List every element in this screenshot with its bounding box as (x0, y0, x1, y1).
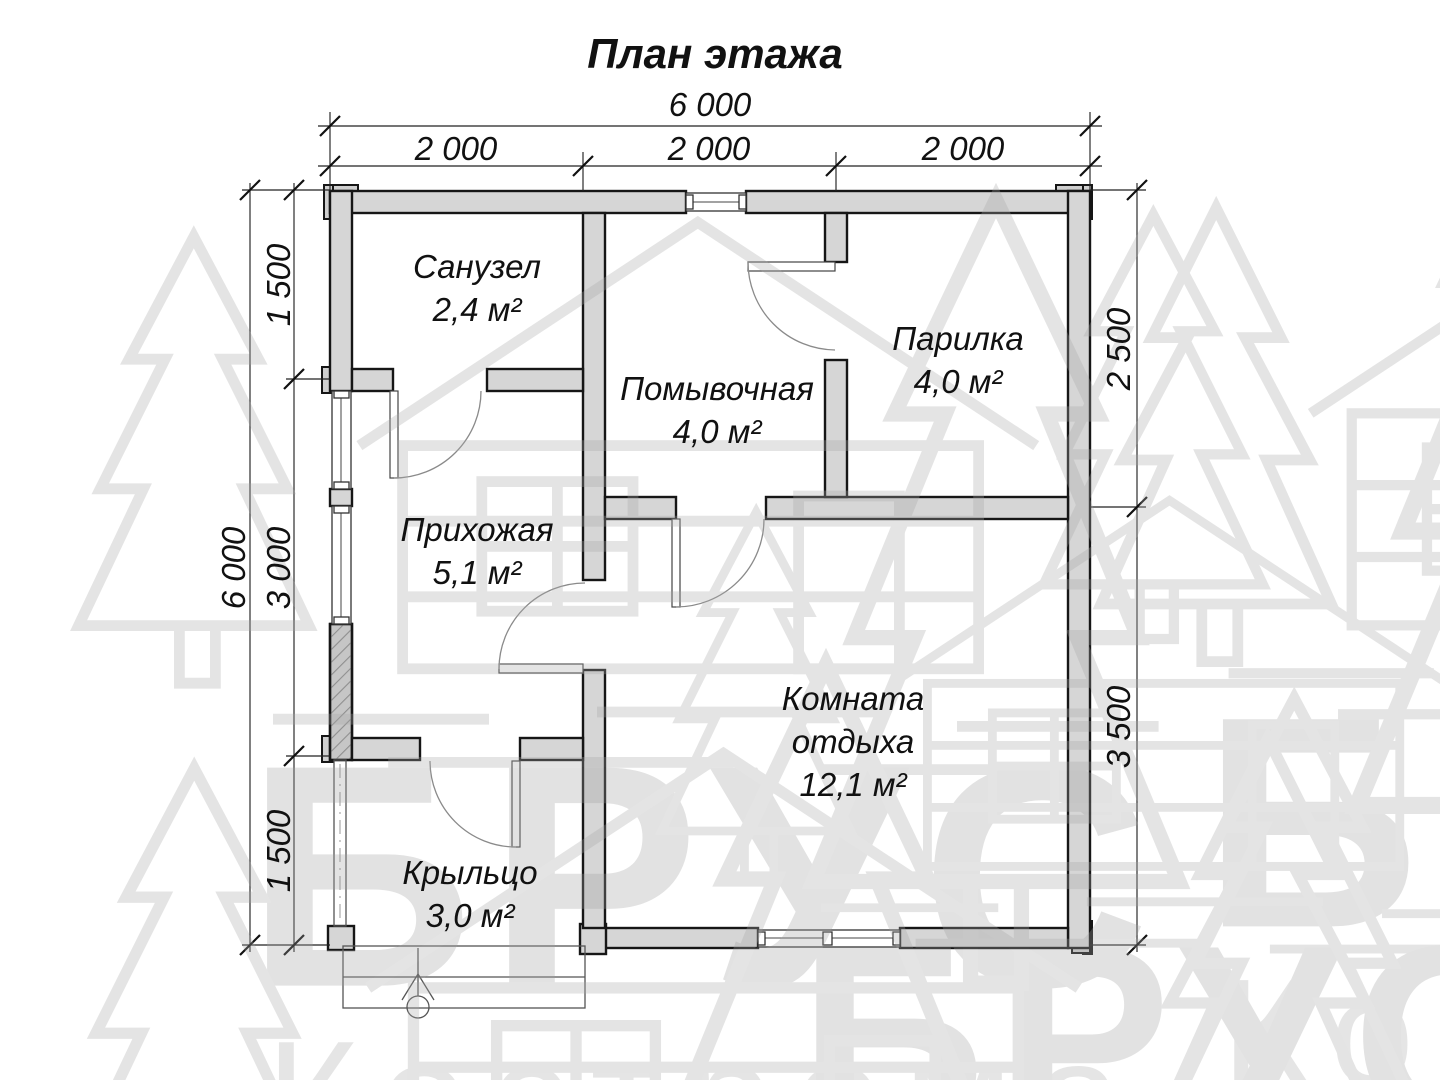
floor-plan-page: БРУС Кострома План этажа 6 000 2 000 2 0… (0, 0, 1440, 1080)
dim-right-module-1: 2 500 (1100, 308, 1138, 391)
wall-sanuzel-left (352, 369, 393, 391)
page-title: План этажа (415, 30, 1015, 78)
wall-bottom-right-segment (900, 928, 1068, 948)
room-name: Крыльцо (345, 852, 595, 895)
dim-top-module-1: 2 000 (331, 130, 581, 168)
room-label-pomyvochnaya: Помывочная 4,0 м² (592, 368, 842, 454)
wall-bottom-left-segment (603, 928, 758, 948)
wall-kryltso-right (520, 738, 583, 760)
wall-top-left-segment (330, 191, 686, 213)
room-area: 2,4 м² (352, 289, 602, 332)
room-name: Помывочная (592, 368, 842, 411)
dim-top-module-2: 2 000 (584, 130, 834, 168)
wall-left-pier (330, 489, 352, 506)
wall-pomyv-left (605, 497, 676, 519)
room-name: Парилка (833, 318, 1083, 361)
room-label-parilka: Парилка 4,0 м² (833, 318, 1083, 404)
wall-parilka-stub (825, 213, 847, 262)
window-left-upper (332, 391, 351, 489)
room-label-komnata-otdyha: Комната отдыха 12,1 м² (738, 678, 968, 807)
dim-top-module-3: 2 000 (838, 130, 1088, 168)
window-left-lower (332, 506, 351, 624)
room-area: 4,0 м² (833, 361, 1083, 404)
window-top (686, 193, 746, 211)
wall-left-hatch (330, 624, 352, 760)
room-label-kryltso: Крыльцо 3,0 м² (345, 852, 595, 938)
room-label-sanuzel: Санузел 2,4 м² (352, 246, 602, 332)
door-pomyv-komnata (672, 519, 764, 607)
wall-kryltso-left (352, 738, 420, 760)
wall-sanuzel-right (487, 369, 583, 391)
porch-steps (343, 946, 585, 1008)
dim-left-module-3: 1 500 (260, 810, 298, 893)
wall-left-upper (330, 191, 352, 391)
dim-left-total: 6 000 (215, 527, 253, 610)
room-label-prihozhaya: Прихожая 5,1 м² (352, 509, 602, 595)
wall-right (1068, 191, 1090, 948)
dim-left-module-2: 3 000 (260, 527, 298, 610)
room-area: 4,0 м² (592, 411, 842, 454)
room-area: 3,0 м² (345, 895, 595, 938)
door-sanuzel (390, 391, 481, 478)
door-prihozhaya-komnata (499, 583, 585, 673)
dim-top-total: 6 000 (585, 86, 835, 124)
room-name: Санузел (352, 246, 602, 289)
door-kryltso-entrance (430, 761, 520, 847)
dim-right-module-2: 3 500 (1100, 686, 1138, 769)
dim-left-module-1: 1 500 (260, 244, 298, 327)
room-name: Прихожая (352, 509, 602, 552)
window-bottom (758, 930, 900, 947)
room-area: 12,1 м² (738, 764, 968, 807)
room-name: Комната отдыха (738, 678, 968, 764)
wall-pomyv-right (766, 497, 1068, 519)
room-area: 5,1 м² (352, 552, 602, 595)
wall-top-right-segment (746, 191, 1090, 213)
door-pomyv-parilka (748, 262, 835, 350)
